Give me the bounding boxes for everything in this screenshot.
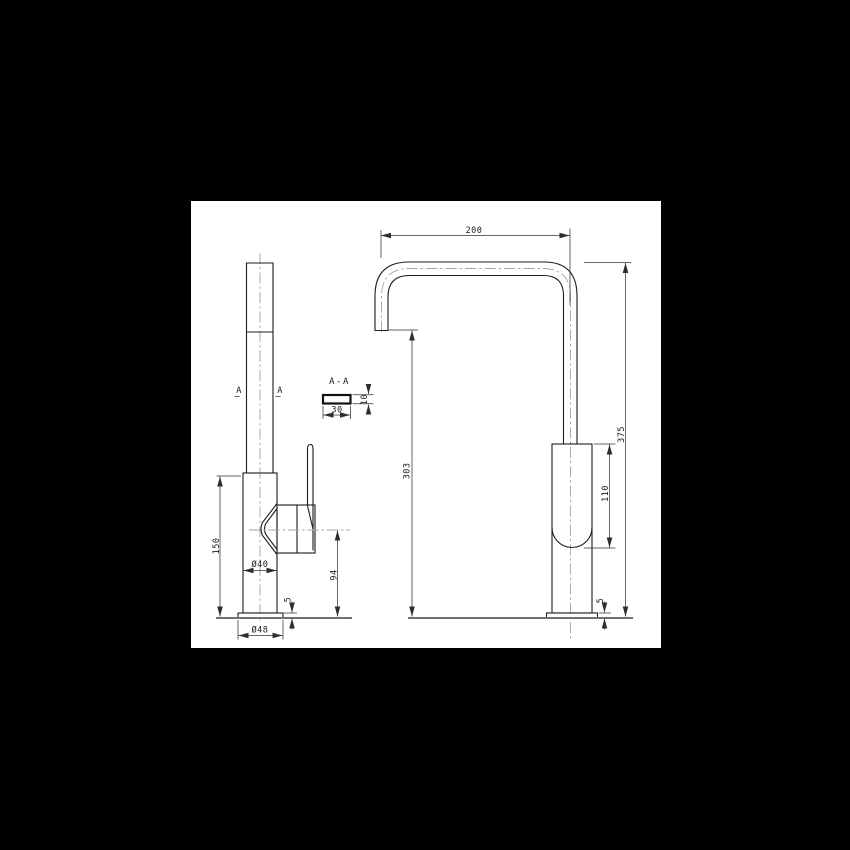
paper-sheet <box>191 201 661 648</box>
dim-303-label: 303 <box>403 463 413 480</box>
section-title: A-A <box>329 377 350 387</box>
dim-5-front-label: 5 <box>284 597 294 603</box>
section-marker-a-left: A <box>236 386 242 396</box>
dim-dia48-label: Ø48 <box>252 625 269 636</box>
drawing-canvas: A A 150 Ø40 94 5 Ø48 A-A <box>0 0 850 850</box>
dim-94-label: 94 <box>330 569 340 580</box>
dim-150-label: 150 <box>212 538 222 555</box>
section-marker-a-right: A <box>277 386 283 396</box>
dim-110-label: 110 <box>601 485 611 502</box>
dim-10-label: 10 <box>360 394 370 405</box>
dim-dia40-label: Ø40 <box>252 559 269 570</box>
dim-5-side-label: 5 <box>596 598 606 604</box>
section-spout-profile <box>323 395 351 404</box>
dim-30-label: 30 <box>331 406 342 416</box>
dim-375-label: 375 <box>617 426 627 443</box>
technical-drawing: A A 150 Ø40 94 5 Ø48 A-A <box>0 0 850 850</box>
dim-200-label: 200 <box>466 226 483 236</box>
